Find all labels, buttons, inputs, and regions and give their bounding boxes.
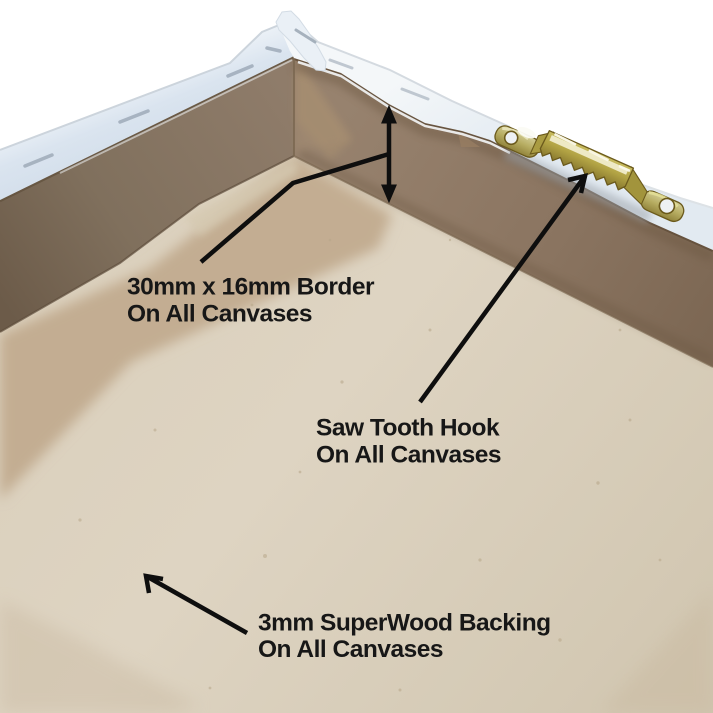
svg-text:30mm x 16mm Border: 30mm x 16mm Border xyxy=(127,274,375,301)
svg-text:Saw Tooth Hook: Saw Tooth Hook xyxy=(316,415,500,442)
svg-text:On All Canvases: On All Canvases xyxy=(258,636,443,663)
svg-text:On All Canvases: On All Canvases xyxy=(316,442,501,469)
svg-text:On All Canvases: On All Canvases xyxy=(127,301,312,328)
svg-text:3mm SuperWood Backing: 3mm SuperWood Backing xyxy=(258,610,551,637)
